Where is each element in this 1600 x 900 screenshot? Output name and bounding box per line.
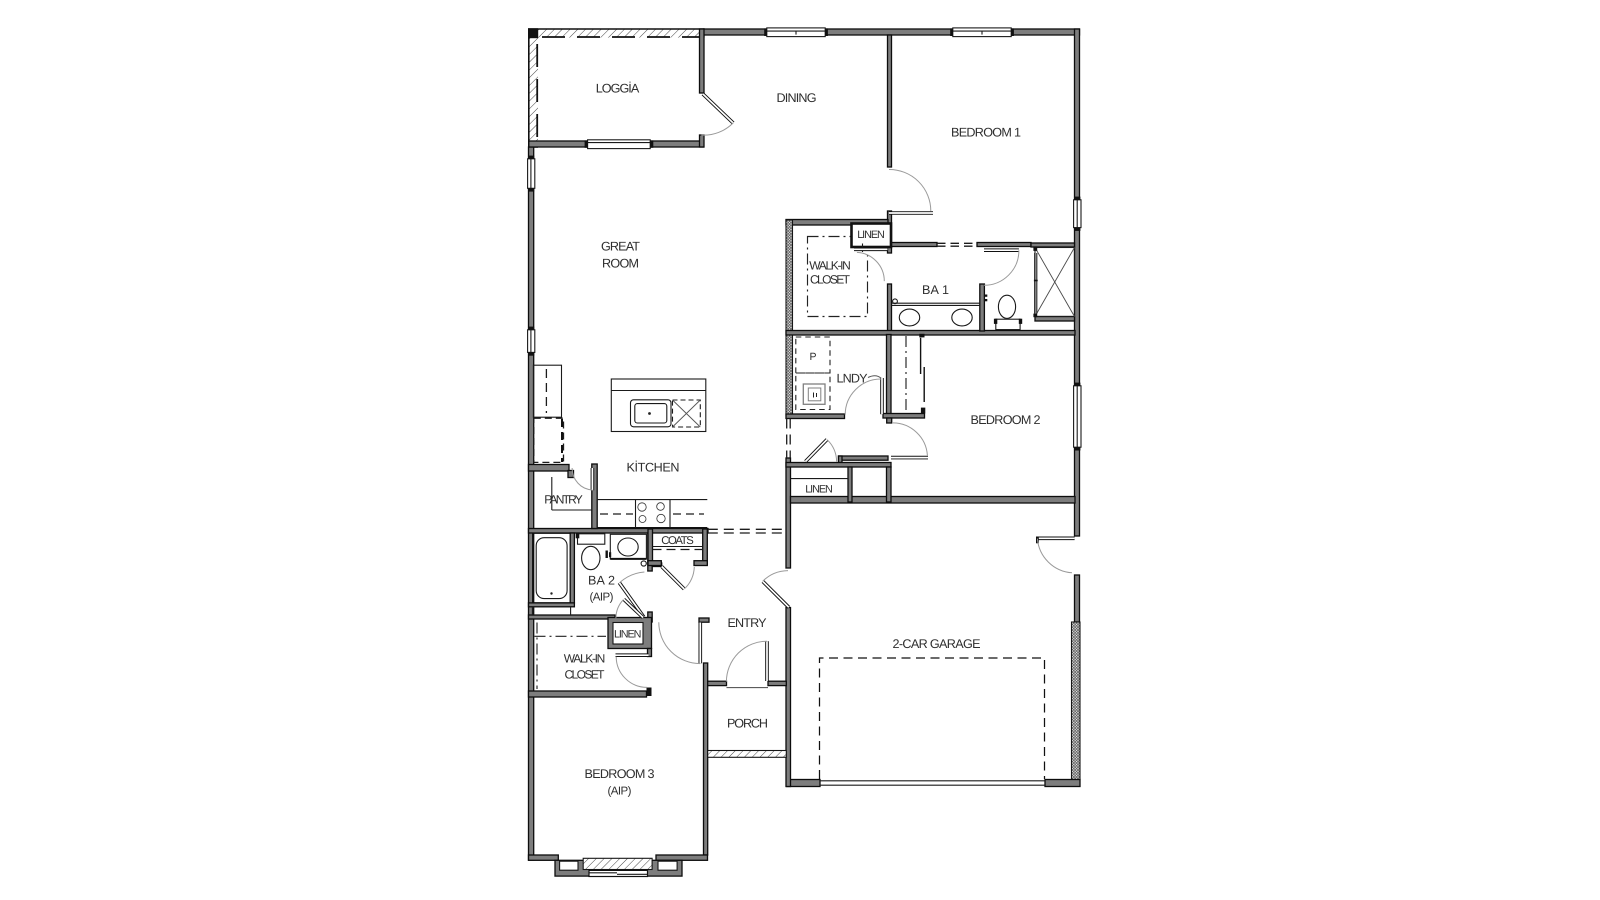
svg-text:LNDY: LNDY <box>837 372 869 386</box>
svg-text:ENTRY: ENTRY <box>728 616 768 630</box>
svg-text:LINEN: LINEN <box>857 229 885 241</box>
svg-text:CLOSET: CLOSET <box>565 668 606 682</box>
svg-text:2-CAR GARAGE: 2-CAR GARAGE <box>893 637 981 651</box>
svg-text:LINEN: LINEN <box>614 629 642 641</box>
svg-text:BEDROOM 3: BEDROOM 3 <box>585 767 655 781</box>
svg-text:LOGGİA: LOGGİA <box>596 82 640 96</box>
svg-text:LINEN: LINEN <box>805 484 833 496</box>
svg-text:(AIP): (AIP) <box>590 592 614 604</box>
svg-text:KİTCHEN: KİTCHEN <box>627 461 680 475</box>
svg-text:ROOM: ROOM <box>602 257 639 271</box>
svg-text:COATS: COATS <box>661 535 694 547</box>
svg-text:WALK-IN: WALK-IN <box>809 258 851 272</box>
svg-text:DINING: DINING <box>777 91 817 105</box>
svg-text:WALK-IN: WALK-IN <box>564 652 606 666</box>
svg-text:BEDROOM 1: BEDROOM 1 <box>951 126 1021 140</box>
svg-text:BA 1: BA 1 <box>922 283 949 297</box>
svg-text:BEDROOM 2: BEDROOM 2 <box>971 413 1041 427</box>
svg-text:CLOSET: CLOSET <box>810 273 851 287</box>
svg-text:GREAT: GREAT <box>601 240 640 254</box>
svg-text:BA 2: BA 2 <box>588 574 615 588</box>
svg-text:P: P <box>809 351 816 363</box>
svg-text:PORCH: PORCH <box>727 717 768 731</box>
svg-text:(AIP): (AIP) <box>608 786 632 798</box>
svg-text:PANTRY: PANTRY <box>544 493 583 507</box>
